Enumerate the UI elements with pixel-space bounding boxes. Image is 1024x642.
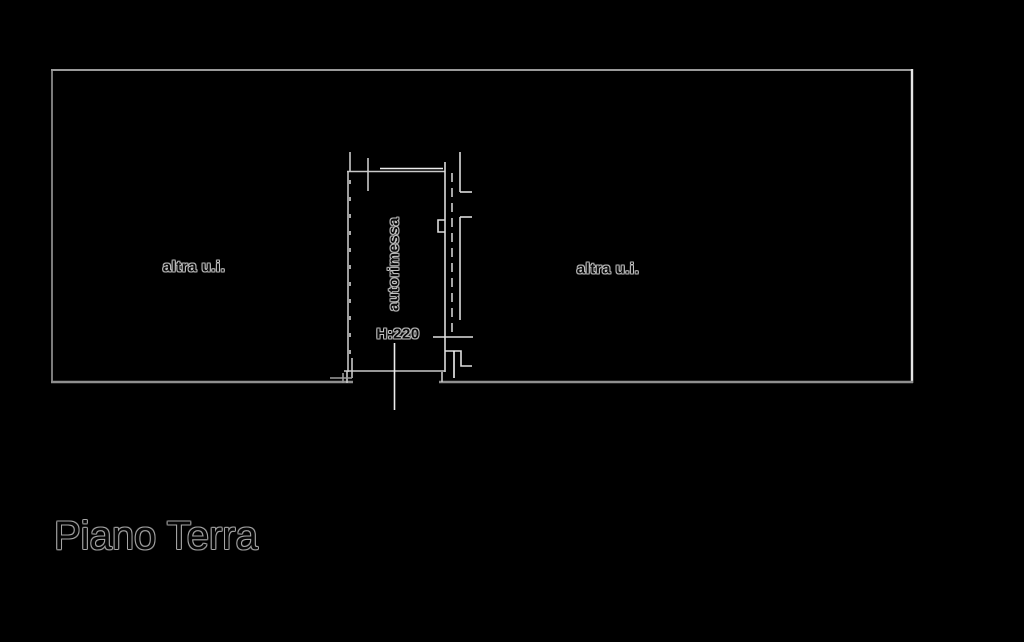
garage-dashed-divider (452, 152, 472, 332)
garage-height-label: H:220 (376, 326, 419, 343)
floor-title: Piano Terra (54, 514, 258, 559)
left-unit-label: altra u.i. (163, 259, 226, 276)
garage-threshold-detail (433, 337, 473, 378)
outer-boundary (51, 69, 913, 383)
garage-label: autorimessa (386, 217, 403, 311)
floorplan-page: altra u.i. altra u.i. autorimessa H:220 … (0, 0, 1024, 642)
right-unit-label: altra u.i. (577, 261, 640, 278)
